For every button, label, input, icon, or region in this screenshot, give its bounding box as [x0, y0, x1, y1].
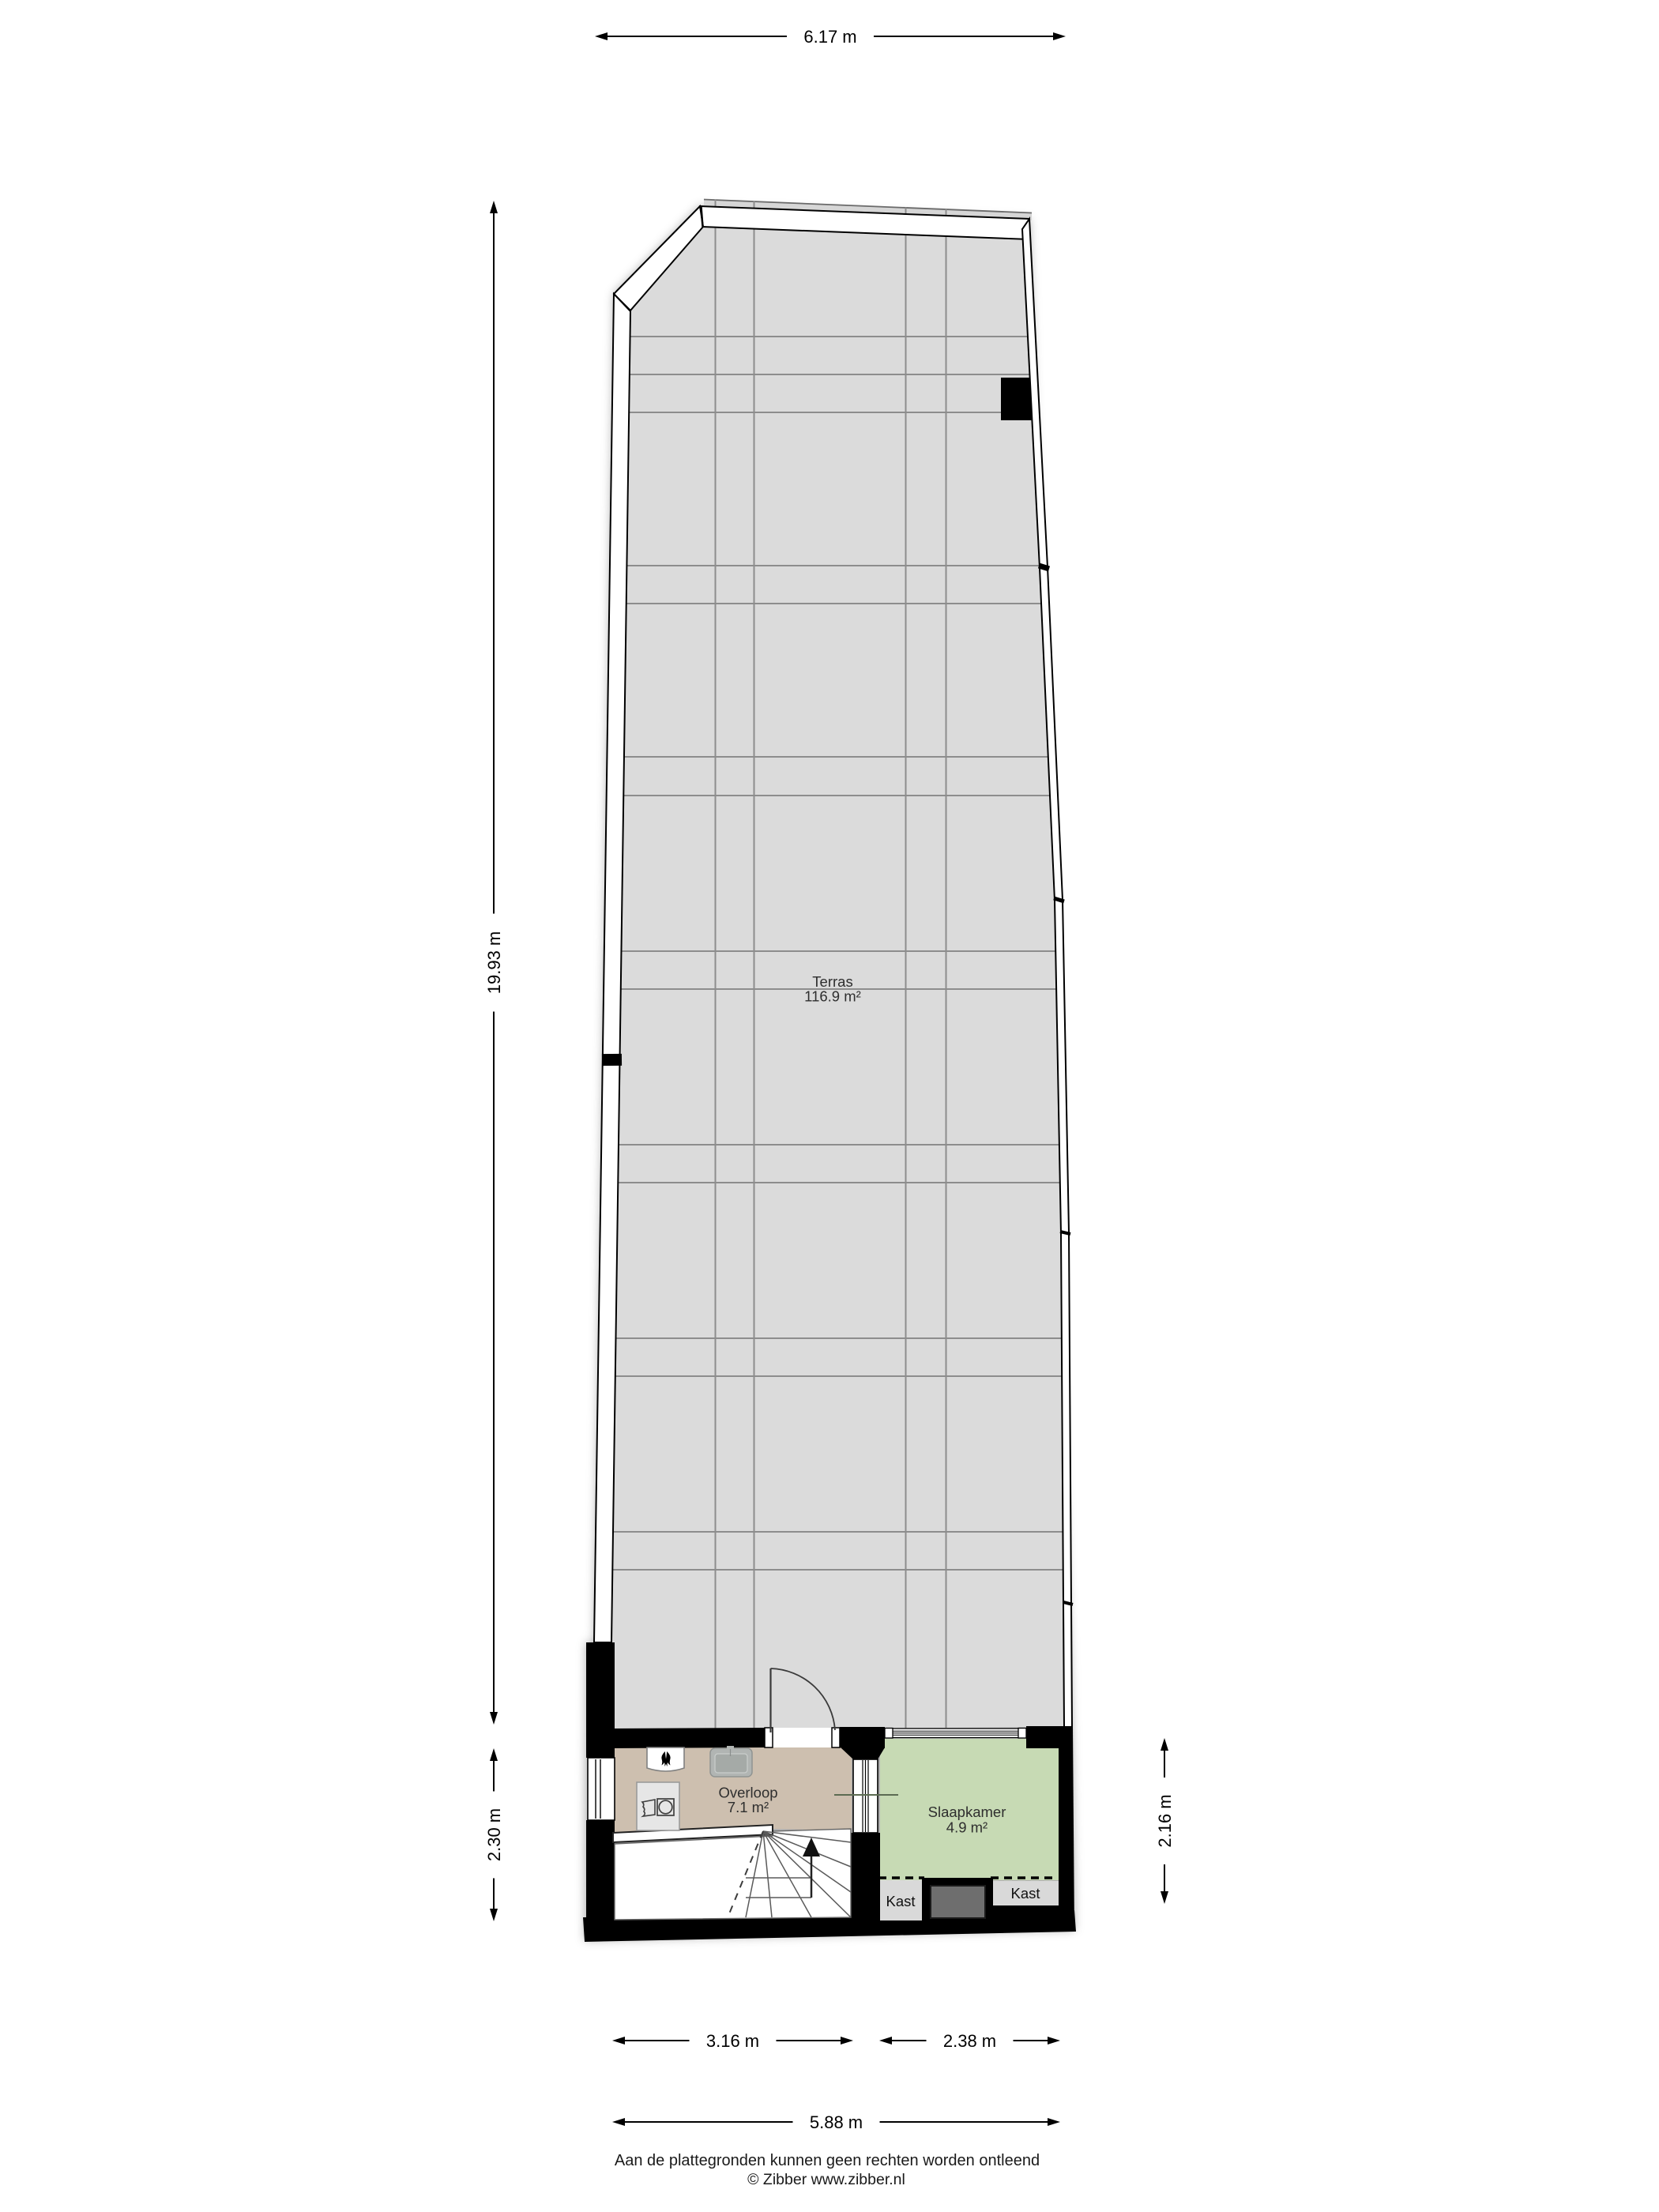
svg-text:Slaapkamer: Slaapkamer — [928, 1804, 1006, 1820]
svg-text:Kast: Kast — [886, 1893, 915, 1909]
svg-text:2.38 m: 2.38 m — [943, 2031, 996, 2051]
svg-text:5.88 m: 5.88 m — [810, 2112, 863, 2132]
svg-text:2.16 m: 2.16 m — [1155, 1794, 1175, 1847]
svg-text:116.9 m²: 116.9 m² — [804, 988, 861, 1005]
svg-text:2.30 m: 2.30 m — [484, 1808, 504, 1861]
svg-text:3.16 m: 3.16 m — [706, 2031, 759, 2051]
svg-text:19.93 m: 19.93 m — [484, 931, 504, 995]
svg-text:6.17 m: 6.17 m — [803, 27, 856, 47]
svg-text:4.9 m²: 4.9 m² — [946, 1819, 987, 1836]
svg-text:© Zibber www.zibber.nl: © Zibber www.zibber.nl — [747, 2171, 905, 2188]
svg-text:Kast: Kast — [1010, 1885, 1040, 1902]
svg-text:7.1 m²: 7.1 m² — [728, 1799, 769, 1815]
svg-text:Aan de plattegronden kunnen ge: Aan de plattegronden kunnen geen rechten… — [615, 2152, 1040, 2169]
